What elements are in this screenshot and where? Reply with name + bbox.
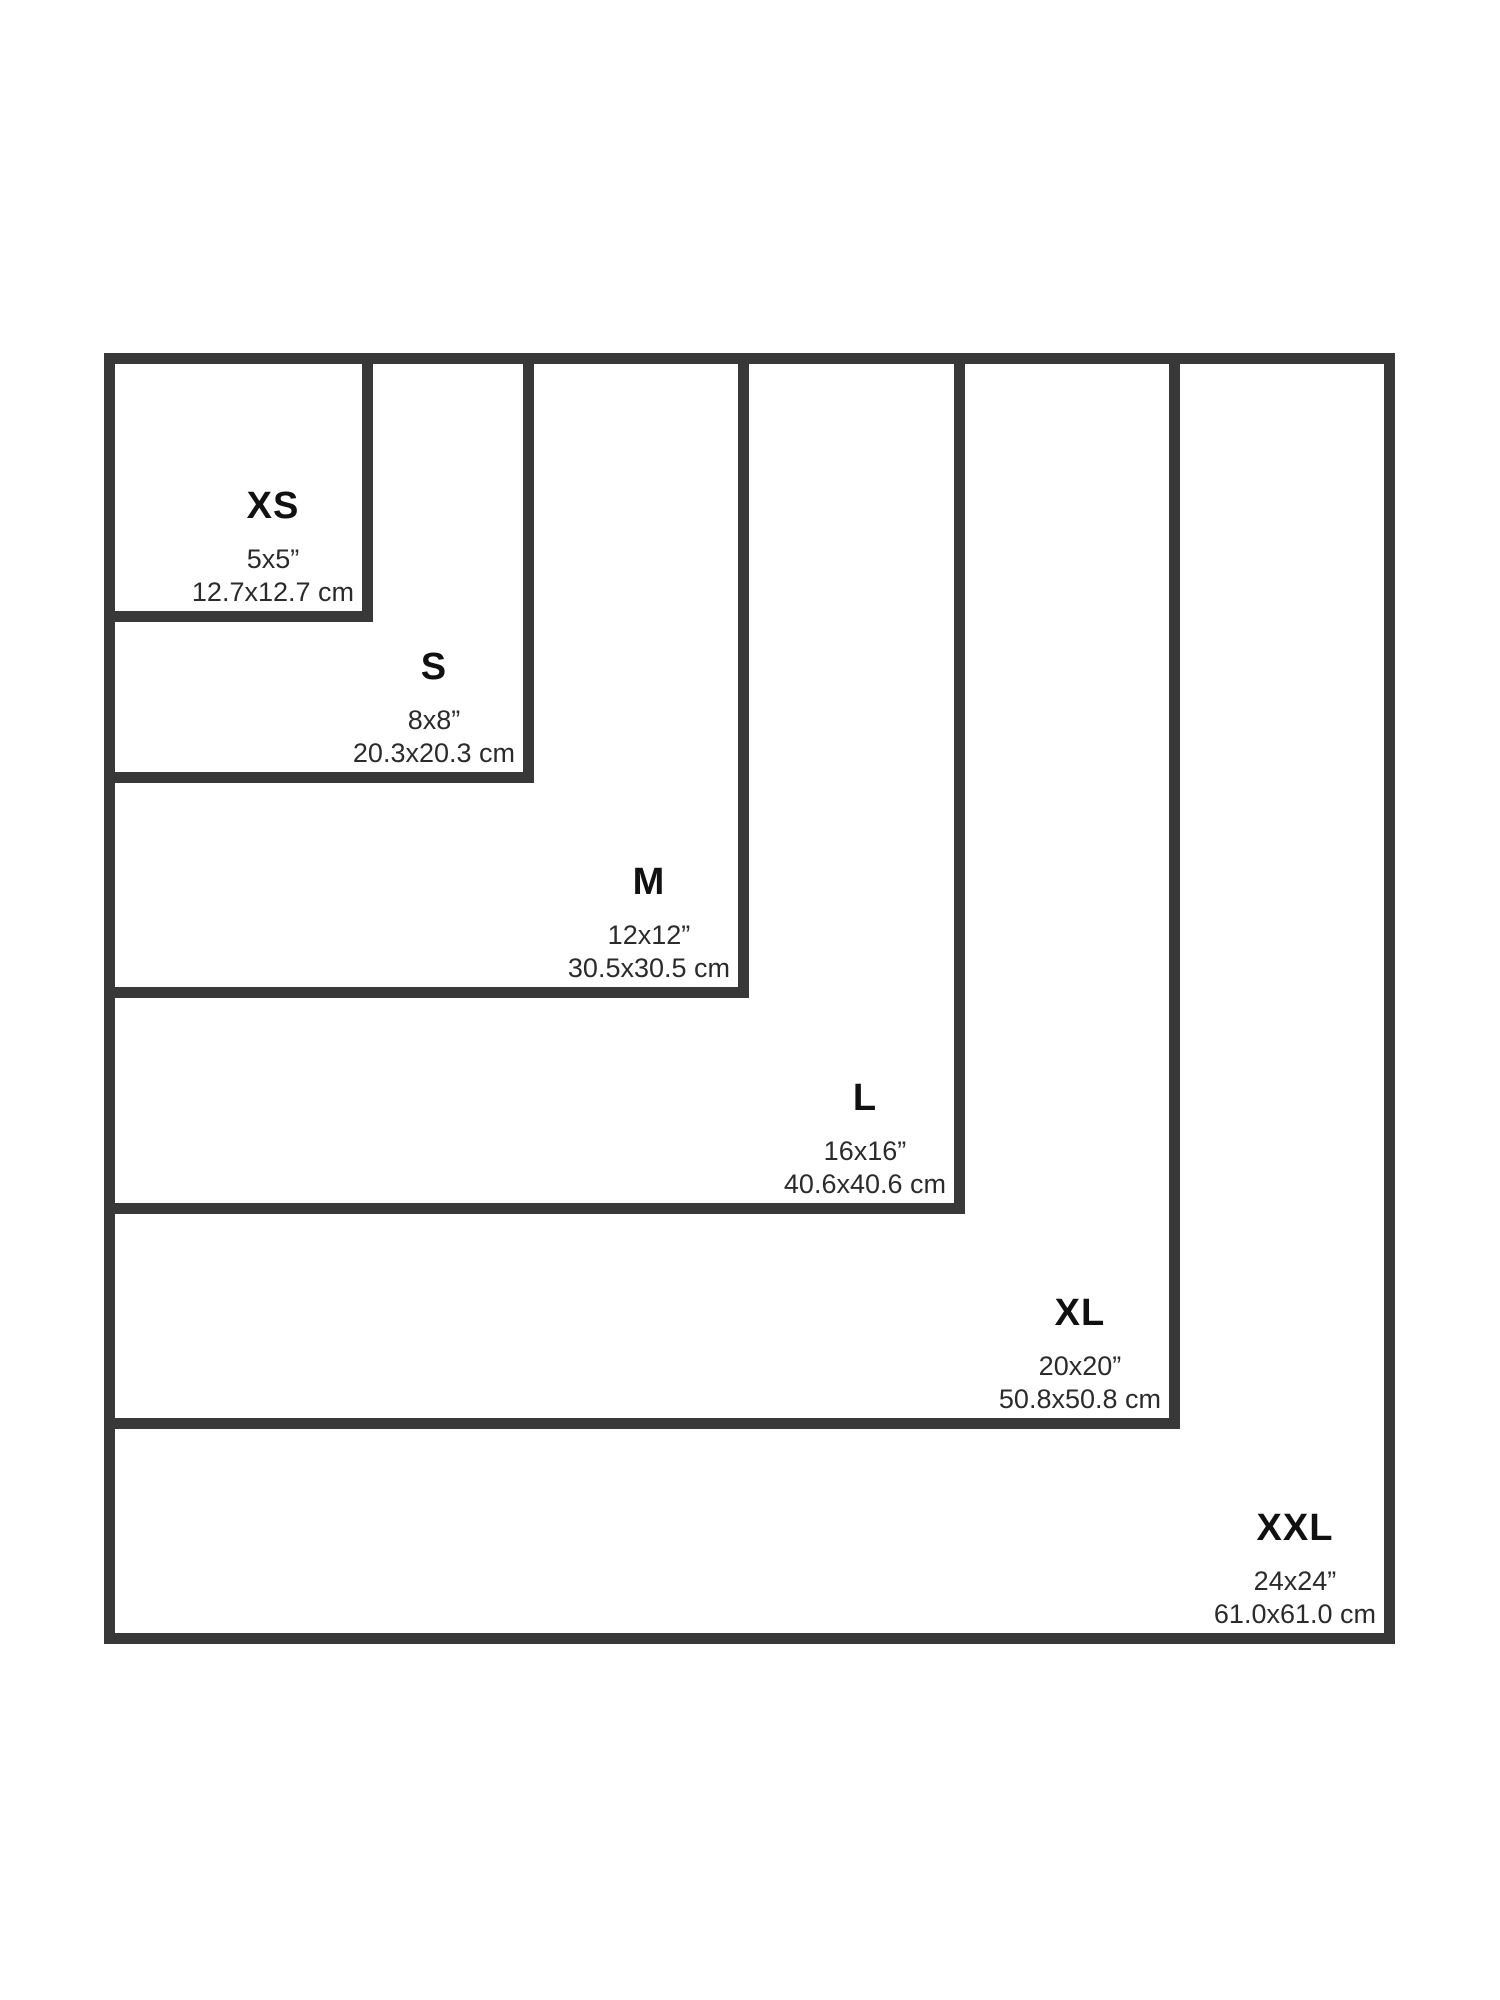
- size-comparison-chart: XS 5x5” 12.7x12.7 cm S 8x8” 20.3x20.3 cm…: [104, 353, 1395, 1644]
- size-inches-xxl: 24x24”: [1214, 1565, 1376, 1598]
- size-letter-xl: XL: [999, 1292, 1161, 1336]
- size-cm-m: 30.5x30.5 cm: [568, 952, 730, 985]
- size-letter-l: L: [784, 1077, 946, 1121]
- size-cm-l: 40.6x40.6 cm: [784, 1168, 946, 1201]
- size-cm-xs: 12.7x12.7 cm: [192, 576, 354, 609]
- size-letter-xxl: XXL: [1214, 1507, 1376, 1551]
- size-label-block: XS 5x5” 12.7x12.7 cm: [192, 485, 354, 609]
- size-cm-xxl: 61.0x61.0 cm: [1214, 1598, 1376, 1631]
- size-label-block: XL 20x20” 50.8x50.8 cm: [999, 1292, 1161, 1416]
- size-square-xs: XS 5x5” 12.7x12.7 cm: [104, 353, 373, 622]
- size-label-block: M 12x12” 30.5x30.5 cm: [568, 861, 730, 985]
- size-inches-xl: 20x20”: [999, 1350, 1161, 1383]
- size-letter-s: S: [353, 646, 515, 690]
- size-cm-xl: 50.8x50.8 cm: [999, 1383, 1161, 1416]
- size-label-block: L 16x16” 40.6x40.6 cm: [784, 1077, 946, 1201]
- size-cm-s: 20.3x20.3 cm: [353, 737, 515, 770]
- size-inches-s: 8x8”: [353, 704, 515, 737]
- size-letter-xs: XS: [192, 485, 354, 529]
- size-letter-m: M: [568, 861, 730, 905]
- size-inches-xs: 5x5”: [192, 543, 354, 576]
- size-label-block: S 8x8” 20.3x20.3 cm: [353, 646, 515, 770]
- size-label-block: XXL 24x24” 61.0x61.0 cm: [1214, 1507, 1376, 1631]
- size-inches-m: 12x12”: [568, 919, 730, 952]
- size-inches-l: 16x16”: [784, 1135, 946, 1168]
